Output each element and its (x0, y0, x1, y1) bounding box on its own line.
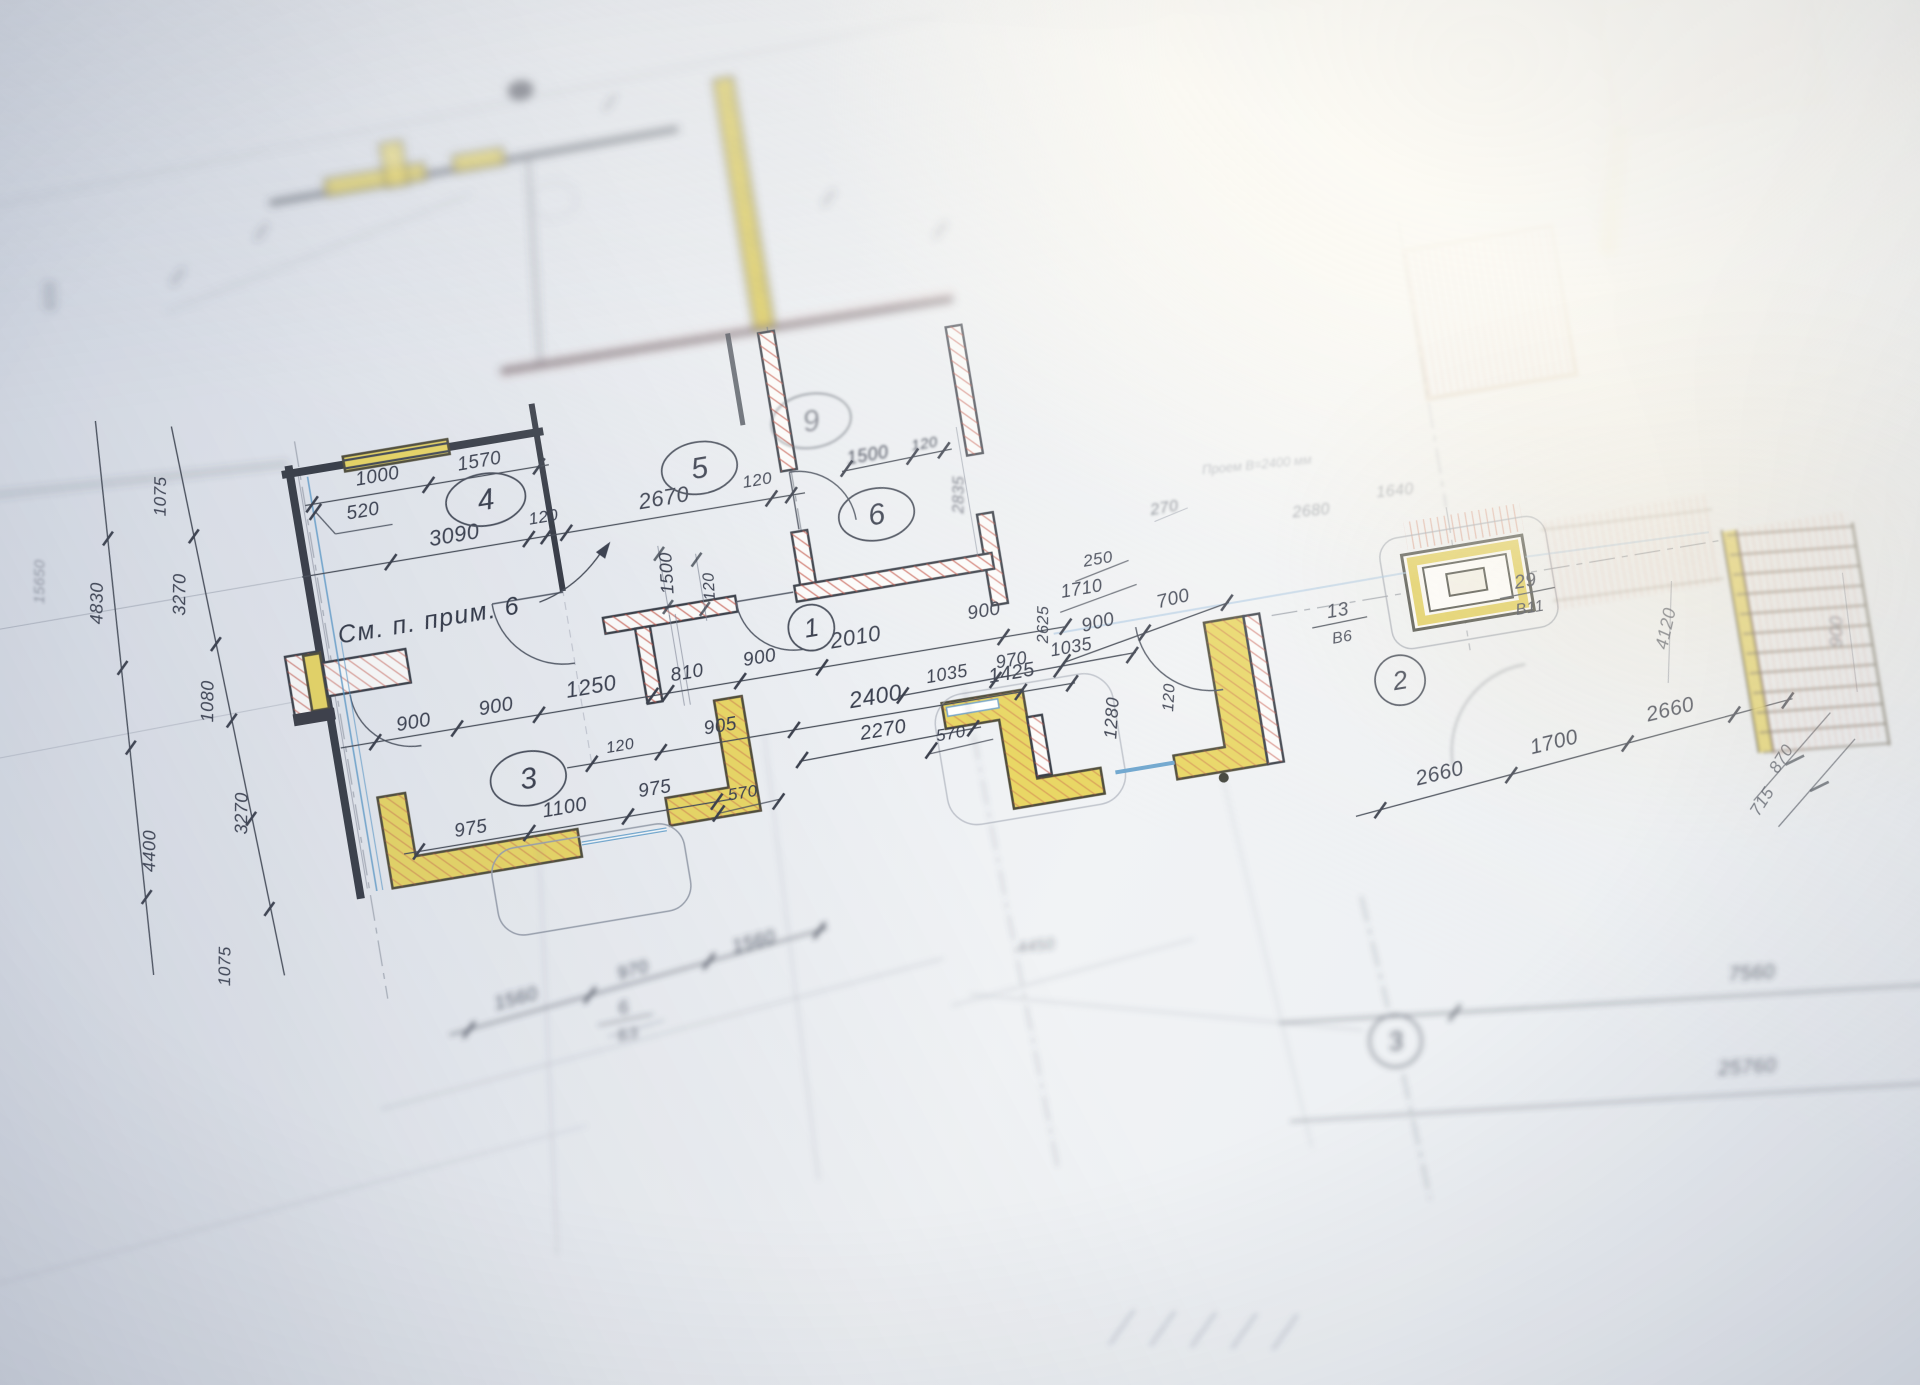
dim-line-far (155, 194, 482, 312)
soft-mid-zone: 1500120283527026801640Проем В=2400 мм156… (18, 298, 1417, 732)
rotated-plan: 620 (0, 0, 1920, 1385)
dimension-label: 3270 (231, 792, 251, 834)
dimension-label: 2010 (827, 620, 883, 653)
dimension-label: 4830 (86, 582, 106, 624)
construction-line-v (490, 842, 607, 1255)
dimension-label: 1075 (151, 476, 170, 516)
dimension-label: 120 (741, 468, 774, 492)
room-number-label: 9 (800, 404, 822, 439)
fraction-top-label: 29 (1512, 569, 1538, 594)
mid-labels: 1500120283527026801640Проем В=2400 мм156… (18, 298, 1417, 732)
axis-number-label: 1 (802, 612, 821, 644)
dimension-label: 900 (395, 709, 433, 736)
dimension-label: 2660 (1643, 693, 1697, 727)
dimension-label: 2270 (858, 716, 908, 746)
dimension-label: 700 (1155, 585, 1192, 613)
fraction-bottom-label: B11 (1514, 598, 1545, 620)
construction-line (372, 958, 953, 1109)
dimension-label: 2835 (950, 476, 967, 515)
dimension-label: 1710 (1059, 575, 1104, 602)
far-marker-blob (506, 78, 535, 102)
ground-line (0, 438, 288, 535)
far-yellow-band (1599, 124, 1629, 255)
room-number-label: 6 (866, 497, 888, 532)
yellow-L-wall-2-hatch (651, 696, 761, 826)
far-yellow-wall (714, 77, 775, 331)
dimension-label: 1035 (1049, 634, 1094, 661)
stairs-zone: 900 (1363, 156, 1890, 817)
dimension-label: 900 (1826, 616, 1846, 648)
dimension-label: 1570 (456, 448, 503, 476)
dimension-label: 3090 (427, 518, 482, 551)
dimension-label: 1075 (215, 946, 234, 986)
far-circle (527, 179, 580, 222)
dimension-label: 520 (345, 498, 381, 524)
blueprint-photo: 620 (0, 0, 1920, 1385)
far-window (453, 148, 505, 172)
room4-right-wall (532, 407, 562, 588)
hatched-stub-hatch (635, 626, 662, 703)
fraction-top-label: 6 (616, 997, 630, 1020)
dimension-label: 1080 (197, 680, 217, 722)
dimension-label: 2625 (1035, 606, 1052, 645)
dimension-label: 120 (700, 572, 719, 601)
dimension-label: 2680 (1291, 501, 1331, 522)
floor-plan-drawing: 620 (0, 0, 1920, 1385)
note-leader (533, 551, 609, 602)
far-warm-wall (1586, 0, 1824, 134)
dimension-label: 2400 (846, 679, 904, 714)
axis-number-label: 3 (1386, 1025, 1406, 1057)
construction-line-v (1223, 773, 1312, 1152)
far-window (325, 163, 426, 195)
hatched-wall-h-hatch (794, 553, 994, 602)
dimension-label: 4120 (1651, 606, 1680, 651)
dimension-label: 1280 (1100, 696, 1123, 739)
dimension-label: 1500 (845, 442, 890, 469)
dimension-label: 900 (1079, 609, 1116, 637)
dimension-label: 1250 (564, 670, 619, 703)
dimension-label: 620 (42, 282, 59, 310)
pier-flange-hatch (322, 649, 410, 696)
dimension-label: 25760 (1717, 1054, 1777, 1080)
dimension-label: 1560 (492, 983, 540, 1014)
dimension-label: 975 (453, 816, 489, 842)
dimension-label: 2670 (636, 481, 692, 514)
dimension-label: 1035 (924, 661, 969, 688)
room-number-label: 4 (475, 482, 497, 517)
axis-number-label: 2 (1389, 664, 1410, 696)
dim-line-left-inner (171, 423, 284, 979)
dimension-label: 1700 (1528, 725, 1581, 759)
dimension-label: 7560 (1728, 961, 1776, 986)
note2-label: Проем В=2400 мм (1201, 452, 1312, 477)
dimension-label: 810 (669, 660, 705, 686)
dimension-label: 1500 (655, 552, 678, 595)
room-number-label: 3 (517, 761, 539, 796)
dimension-label: 1560 (730, 926, 778, 957)
sharp-main-zone: 10005201570309012026701201500120См. п. п… (0, 141, 1882, 1125)
dimension-label: 120 (605, 736, 636, 757)
dimension-label: 1640 (1376, 481, 1415, 502)
dimension-label: 900 (477, 693, 515, 720)
blue-sill-core (582, 829, 667, 843)
dimension-label: 570 (934, 722, 967, 746)
hatched-wall-v2-hatch (946, 325, 983, 456)
dimension-label: 4450 (1017, 936, 1056, 957)
dim-line-7560 (1279, 911, 1920, 1095)
bottom-hatch-marks (1105, 1283, 1303, 1376)
warm-wall-block (1403, 226, 1576, 399)
dimension-label: 4400 (139, 830, 159, 872)
construction-line (0, 1126, 597, 1293)
dimension-label: 120 (910, 433, 939, 454)
dimension-label: 270 (1148, 498, 1180, 520)
hatched-wall-h-hatch (603, 596, 738, 634)
dim-line-25760 (1290, 1008, 1920, 1193)
dimension-label: 15650 (31, 559, 48, 604)
note-label: См. п. прим. 6 (336, 592, 522, 650)
far-labels: 620 (38, 279, 64, 313)
fraction-bottom-label: Б3 (617, 1025, 640, 1045)
dimension-label: 900 (742, 645, 778, 671)
fraction-top-label: 13 (1325, 599, 1350, 623)
dimension-label: 1100 (541, 793, 589, 822)
ext-line (0, 702, 294, 769)
construction-line (0, 16, 944, 252)
dimension-label: 3270 (169, 573, 189, 615)
room-number-label: 5 (689, 451, 711, 486)
door-arc (1438, 664, 1539, 765)
fraction-bottom-label: B6 (1331, 628, 1354, 648)
dimension-label: 900 (966, 598, 1002, 624)
dimension-label: 2660 (1412, 757, 1466, 791)
dimension-label: 715 (1746, 784, 1778, 819)
dimension-label: 120 (1160, 683, 1179, 712)
room5-partition (728, 333, 743, 425)
